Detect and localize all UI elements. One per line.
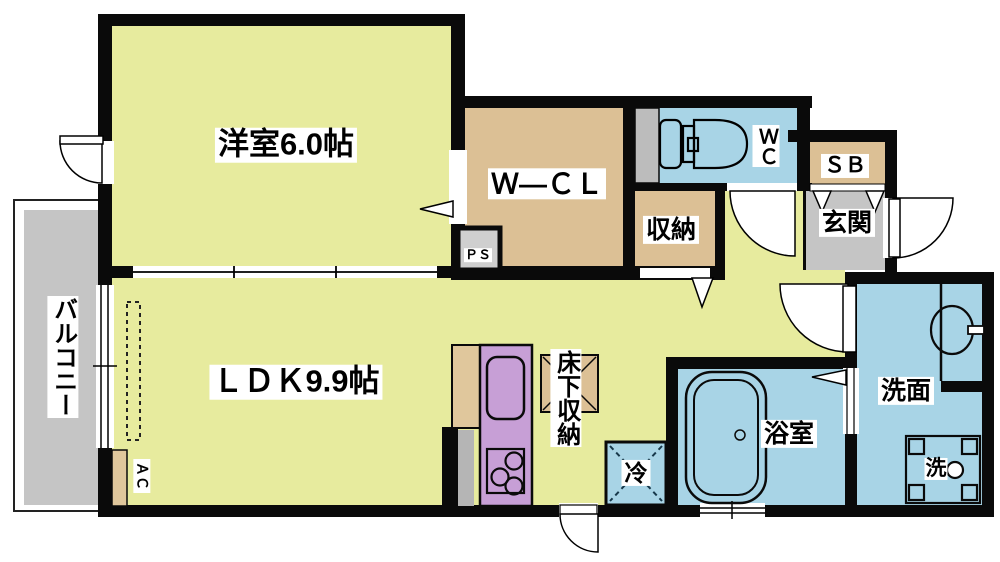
label-ac: ＡＣ — [134, 459, 151, 493]
floor-plan: 洋室6.0帖 ＬＤＫ9.9帖 Ｗ—ＣＬ ＷＣ ＳＢ 玄関 収納 ＰＳ バルコニー… — [0, 0, 1000, 562]
storage-door-gap — [640, 268, 710, 278]
entry-door-arc — [893, 198, 953, 258]
room-label-shoe-box: ＳＢ — [821, 154, 869, 178]
room-label-bathroom: 浴室 — [761, 420, 817, 448]
wc-door-gap — [727, 183, 797, 191]
room-label-pipe-space: ＰＳ — [464, 248, 492, 262]
room-label-wc: ＷＣ — [753, 125, 780, 167]
label-refrigerator: 冷 — [622, 460, 651, 486]
entry-door-leaf — [889, 199, 900, 257]
duct-area — [635, 108, 659, 183]
bottom-door-arc — [560, 514, 598, 552]
kitchen-gray-strip — [458, 430, 474, 506]
western-room-door-arc — [60, 141, 102, 183]
western-room-door-leaf — [60, 136, 103, 144]
ldk-door-leaf — [843, 286, 856, 352]
room-label-entrance: 玄関 — [819, 209, 875, 237]
room-label-wcl: Ｗ—ＣＬ — [488, 168, 606, 199]
room-label-balcony: バルコニー — [47, 296, 78, 418]
ac-unit-box — [112, 450, 127, 506]
label-underfloor-storage: 床下収納 — [550, 349, 581, 447]
room-label-western: 洋室6.0帖 — [215, 128, 357, 163]
label-washing-machine: 洗 — [925, 458, 948, 480]
room-label-storage: 収納 — [643, 216, 699, 244]
shoe-box-door-strip — [810, 184, 885, 191]
room-label-ldk: ＬＤＫ9.9帖 — [209, 365, 382, 400]
room-label-washroom: 洗面 — [878, 377, 934, 405]
kitchen-cabinet — [452, 345, 480, 428]
